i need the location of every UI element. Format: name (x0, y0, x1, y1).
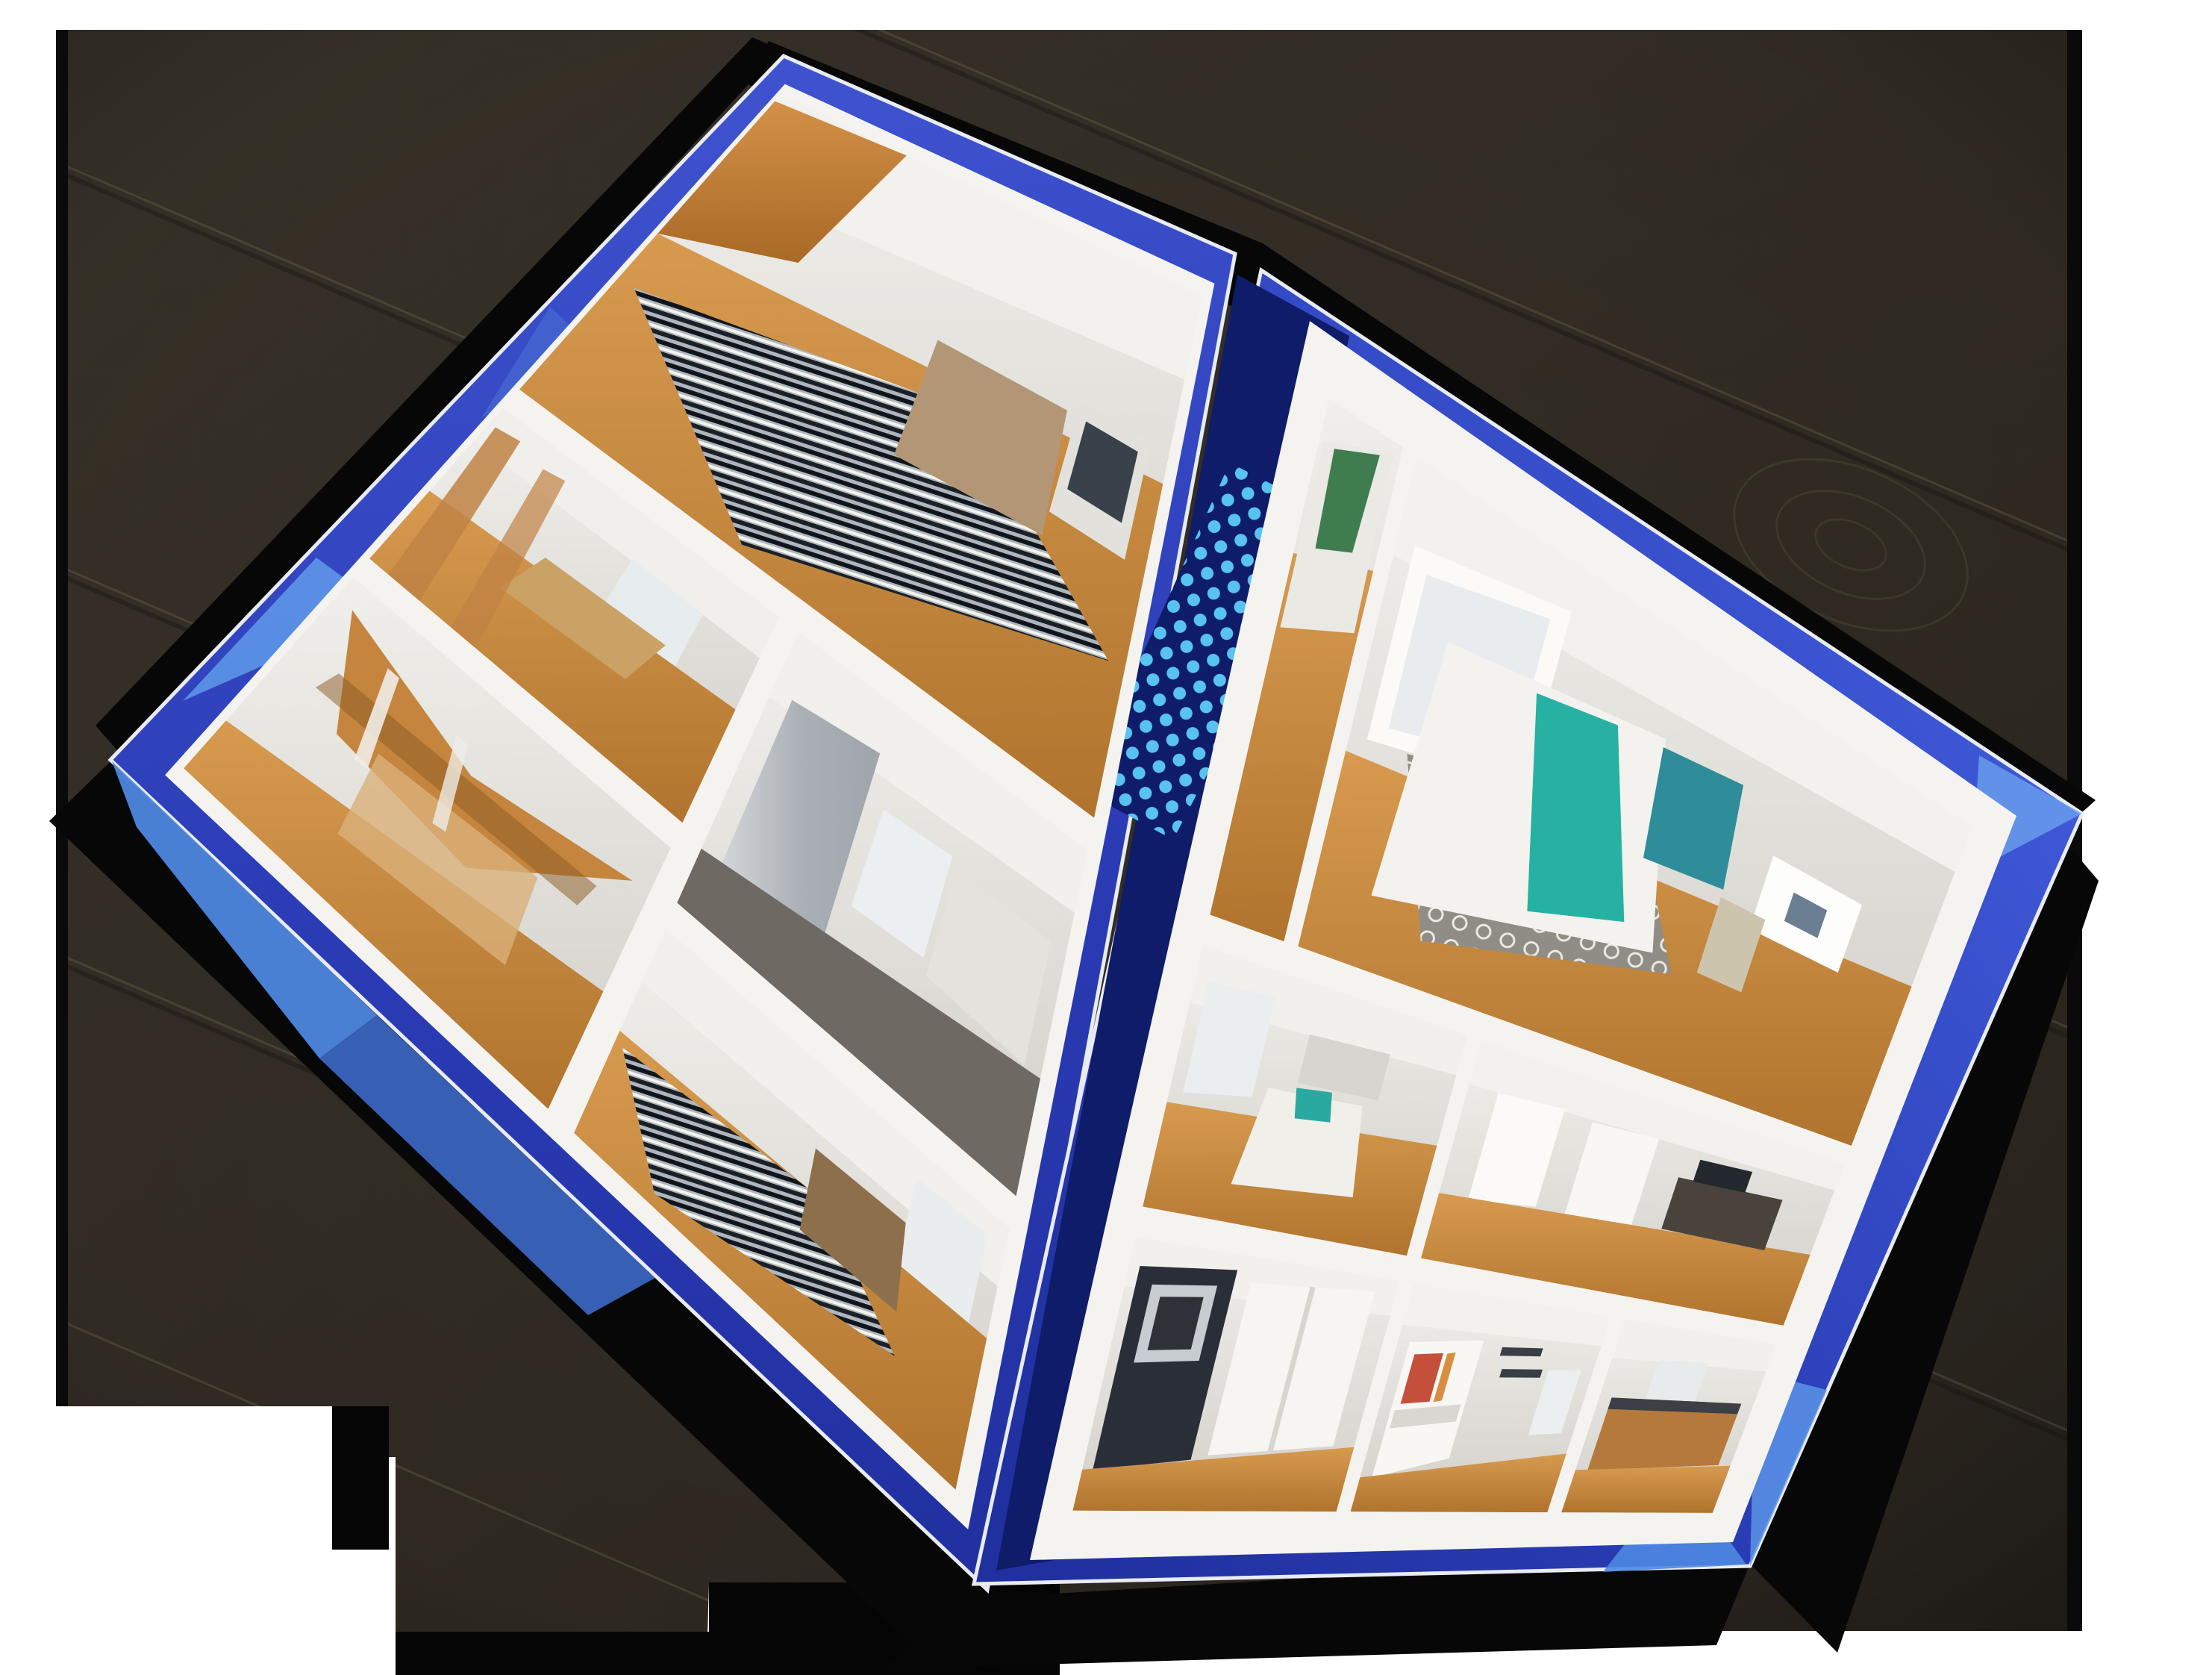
floor-edge-left (56, 30, 68, 1407)
photo-detail (1527, 693, 1624, 923)
photo-detail (1499, 1369, 1543, 1378)
scene-canvas (0, 0, 2212, 1675)
photo-detail (1295, 1088, 1332, 1122)
cutout-shadow-notch (332, 1406, 389, 1550)
brochure-photo-scene (0, 0, 2212, 1675)
photo-detail (1561, 1466, 1731, 1513)
photo-detail (1500, 1347, 1543, 1356)
